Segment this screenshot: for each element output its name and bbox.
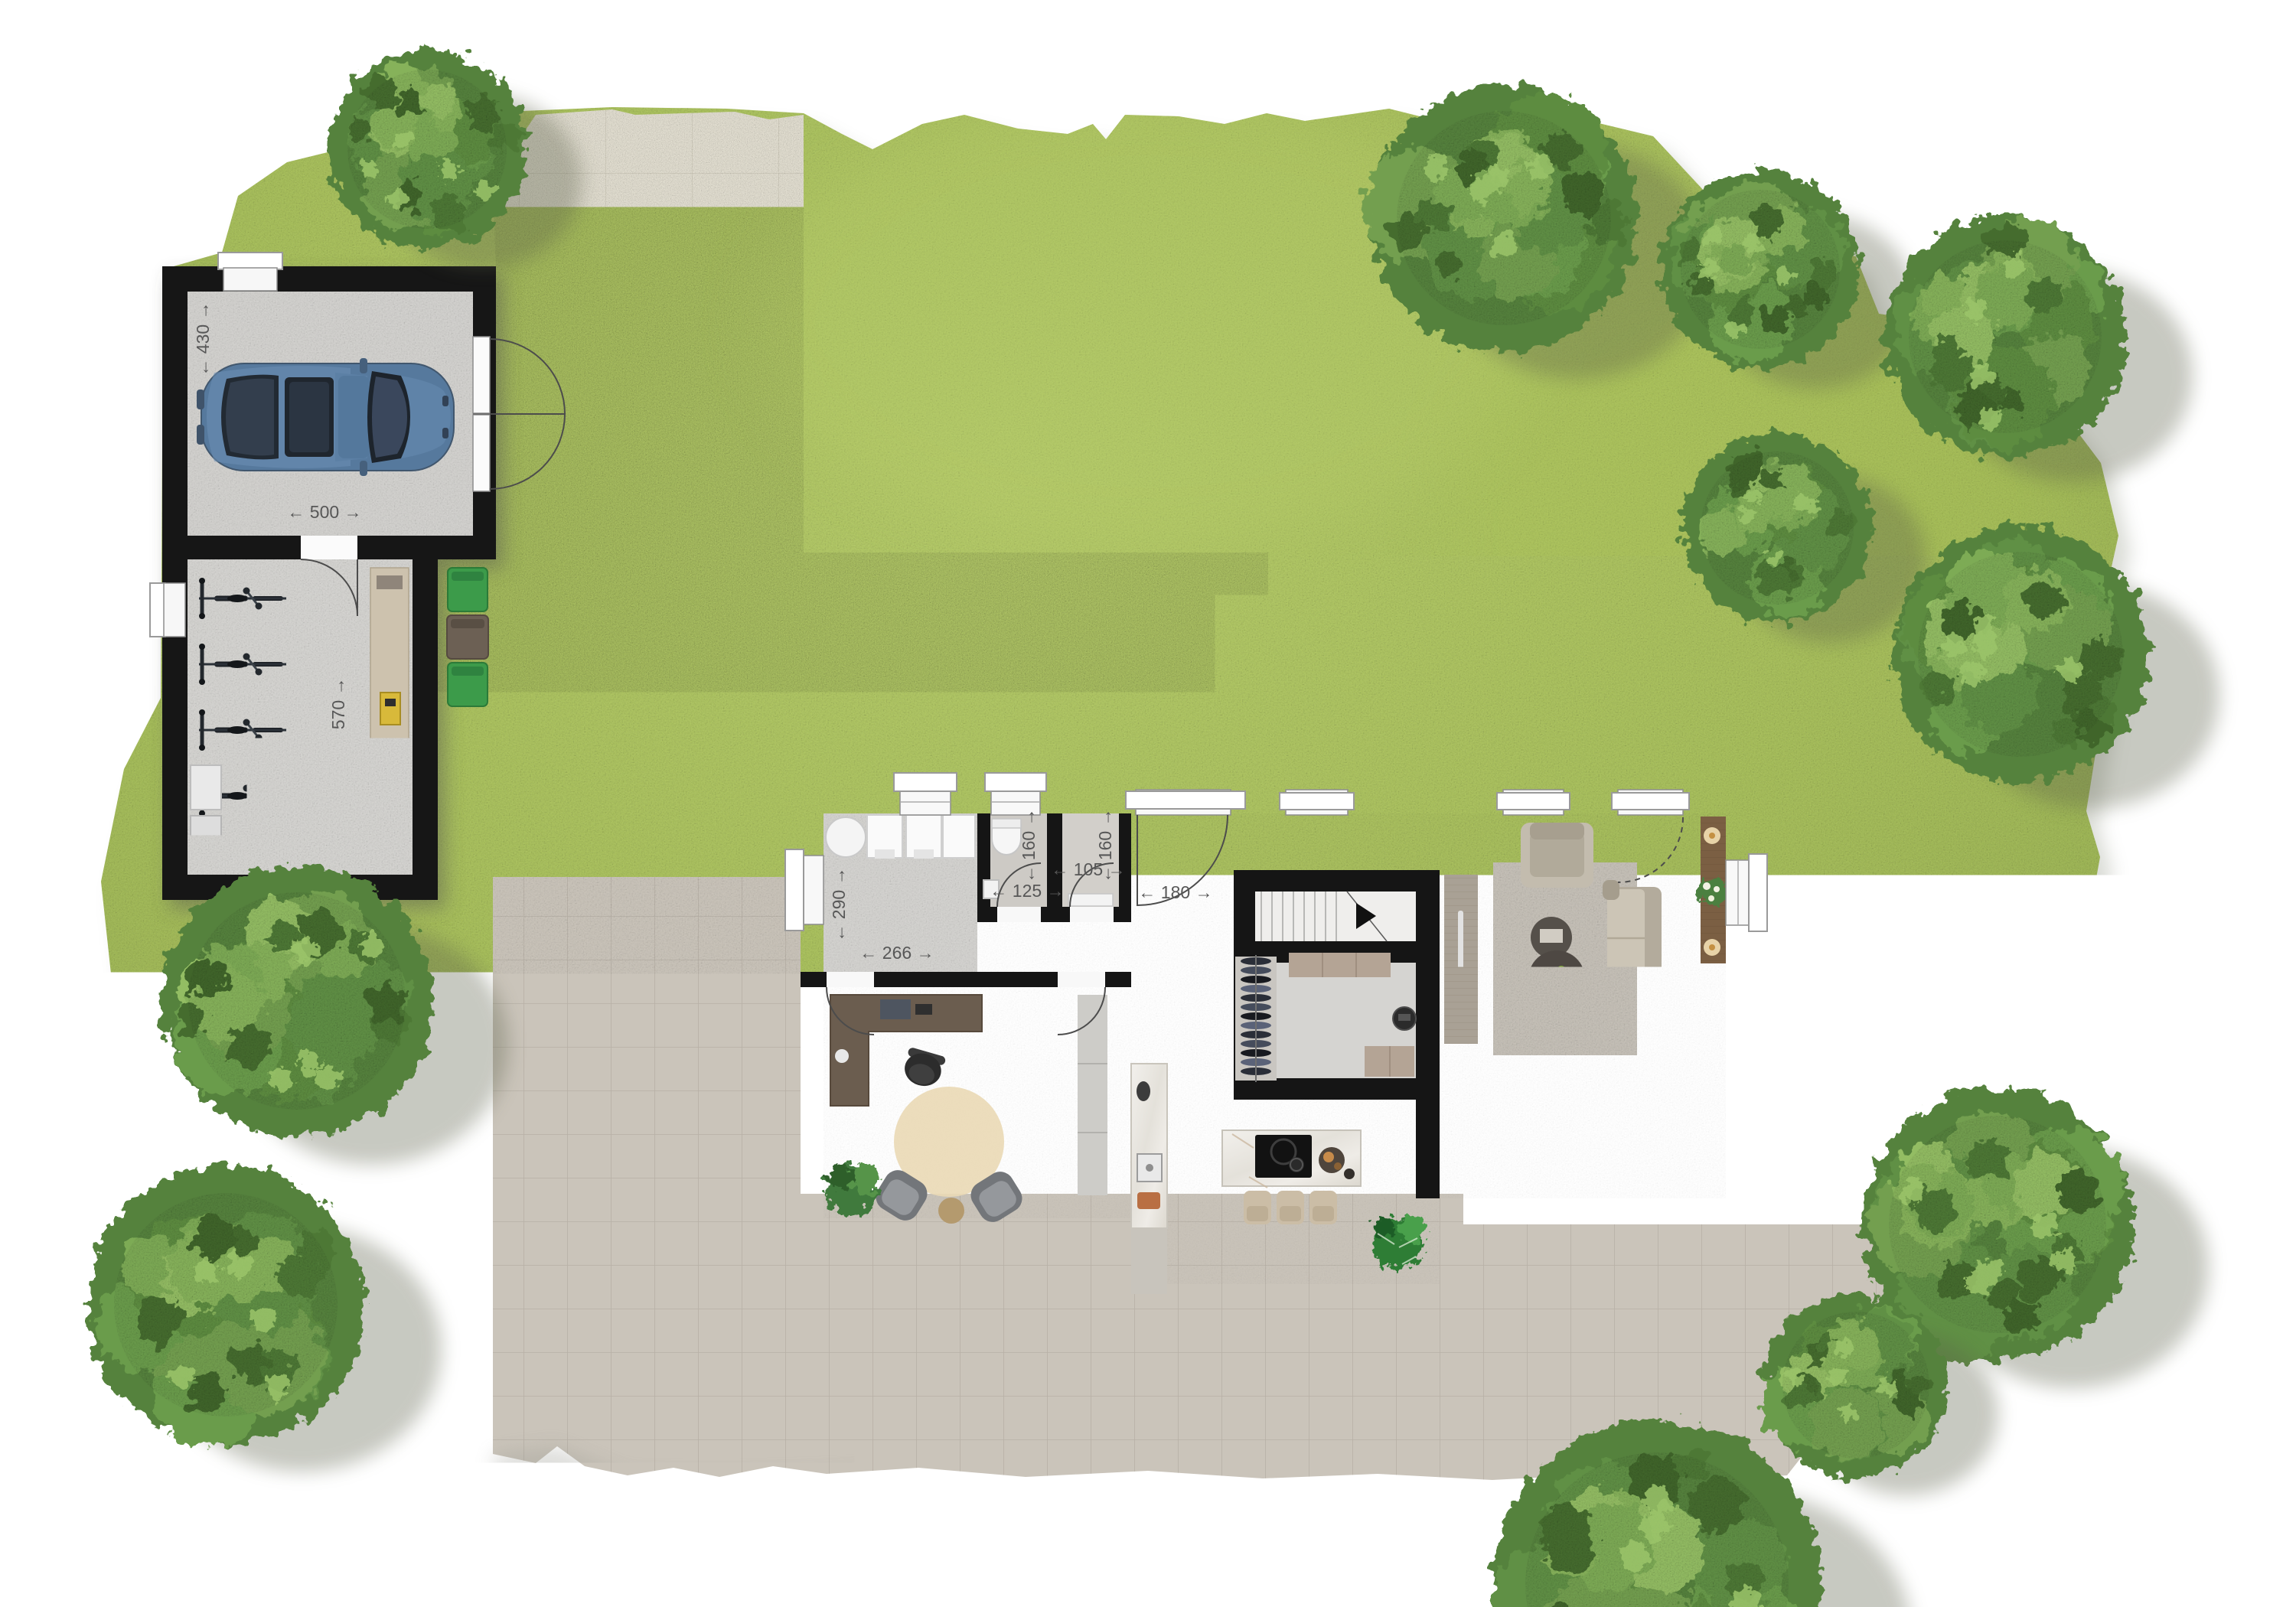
svg-text:← 494 →: ← 494 →: [1515, 1063, 1589, 1083]
svg-text:← 160 →: ← 160 →: [1019, 808, 1039, 882]
svg-text:← 500 →: ← 500 →: [287, 502, 361, 522]
svg-text:← 400 →: ← 400 →: [263, 795, 337, 815]
svg-text:← 230 →: ← 230 →: [1286, 966, 1360, 986]
svg-text:← 500 →: ← 500 →: [1253, 1091, 1327, 1111]
svg-text:← 160 →: ← 160 →: [1095, 808, 1115, 882]
svg-text:← 360 →: ← 360 →: [826, 1074, 846, 1148]
svg-text:← 570 →: ← 570 →: [328, 677, 348, 751]
svg-text:← 516 →: ← 516 →: [928, 1068, 1003, 1088]
svg-text:← 180 →: ← 180 →: [1138, 882, 1212, 902]
svg-text:← 290 →: ← 290 →: [829, 867, 849, 941]
svg-text:← 670 →: ← 670 →: [1632, 1063, 1652, 1137]
svg-text:← 266 →: ← 266 →: [859, 943, 934, 963]
svg-text:← 380 →: ← 380 →: [1378, 1129, 1398, 1204]
svg-text:← 180 →: ← 180 →: [1359, 970, 1379, 1044]
svg-text:← 430 →: ← 430 →: [193, 302, 213, 376]
svg-text:← 125 →: ← 125 →: [990, 881, 1064, 901]
